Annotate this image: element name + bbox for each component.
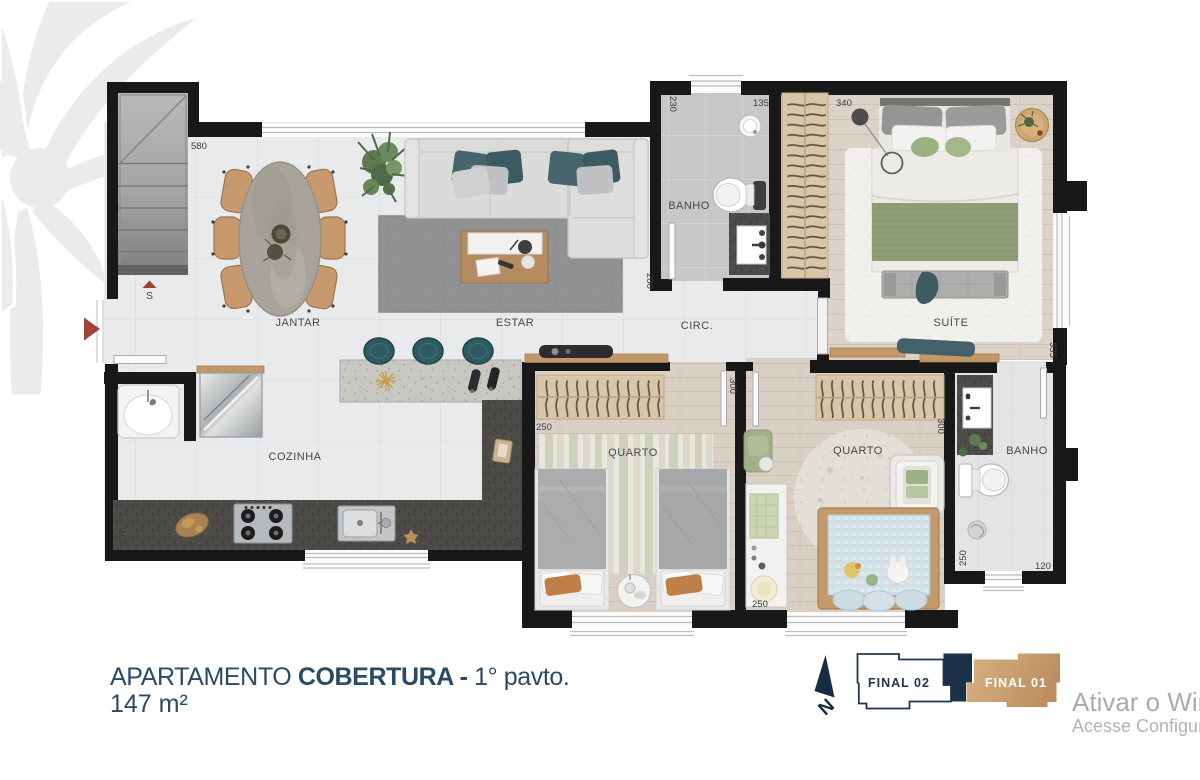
svg-text:SUÍTE: SUÍTE <box>934 316 969 329</box>
svg-text:335: 335 <box>1047 342 1058 358</box>
svg-text:Ativar o Wind: Ativar o Wind <box>1072 687 1200 717</box>
svg-text:300: 300 <box>935 418 946 434</box>
svg-text:250: 250 <box>752 599 768 610</box>
svg-text:250: 250 <box>536 422 552 433</box>
svg-text:120: 120 <box>1035 561 1051 572</box>
svg-text:COZINHA: COZINHA <box>269 451 322 463</box>
svg-text:BANHO: BANHO <box>1006 445 1048 457</box>
svg-text:BANHO: BANHO <box>668 200 710 212</box>
svg-text:CIRC.: CIRC. <box>681 320 713 332</box>
svg-text:FINAL 02: FINAL 02 <box>868 676 930 690</box>
svg-text:135: 135 <box>753 98 769 109</box>
svg-text:ESTAR: ESTAR <box>496 317 534 329</box>
svg-text:300: 300 <box>727 378 738 394</box>
svg-text:APARTAMENTO COBERTURA - 1° pav: APARTAMENTO COBERTURA - 1° pavto. <box>110 663 569 691</box>
svg-text:FINAL 01: FINAL 01 <box>985 676 1047 690</box>
svg-text:QUARTO: QUARTO <box>833 445 883 457</box>
svg-text:Acesse Configuraçõe: Acesse Configuraçõe <box>1072 716 1200 736</box>
svg-text:QUARTO: QUARTO <box>608 447 658 459</box>
svg-text:230: 230 <box>667 96 678 112</box>
svg-text:580: 580 <box>191 141 207 152</box>
svg-text:JANTAR: JANTAR <box>276 317 321 329</box>
svg-text:505: 505 <box>505 537 521 548</box>
svg-text:S: S <box>146 290 153 302</box>
svg-text:280: 280 <box>644 273 655 289</box>
svg-text:147 m²: 147 m² <box>110 690 188 718</box>
svg-text:250: 250 <box>958 550 969 566</box>
svg-text:340: 340 <box>836 98 852 109</box>
svg-text:207: 207 <box>118 529 129 545</box>
